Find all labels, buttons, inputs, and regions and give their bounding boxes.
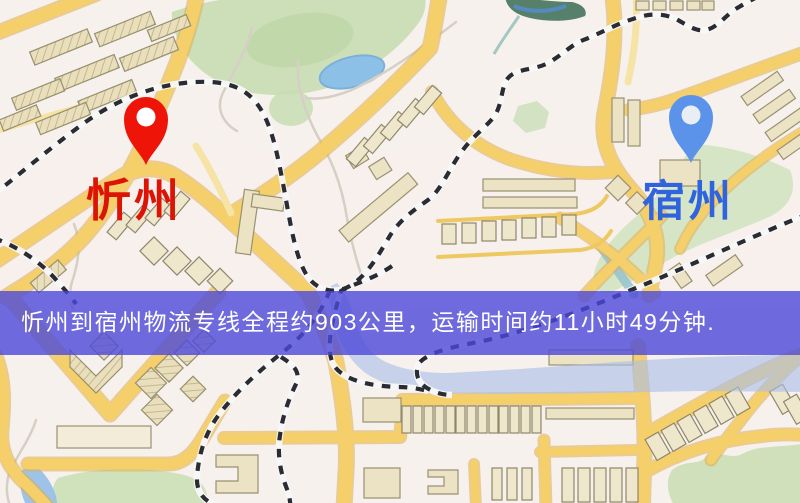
map-background (0, 0, 800, 503)
destination-map-pin[interactable] (661, 83, 721, 167)
destination-city-label: 宿州 (642, 181, 734, 224)
origin-map-pin[interactable] (116, 85, 176, 169)
route-info-text: 忻州到宿州物流专线全程约903公里，运输时间约11小时49分钟. (21, 303, 715, 337)
route-info-banner: 忻州到宿州物流专线全程约903公里，运输时间约11小时49分钟. (0, 291, 800, 355)
map-pin-icon (116, 85, 176, 169)
origin-city-label: 忻州 (86, 178, 182, 223)
logistics-route-map: 忻州到宿州物流专线全程约903公里，运输时间约11小时49分钟. 忻州 宿州 (0, 0, 800, 503)
map-pin-icon (661, 83, 721, 167)
